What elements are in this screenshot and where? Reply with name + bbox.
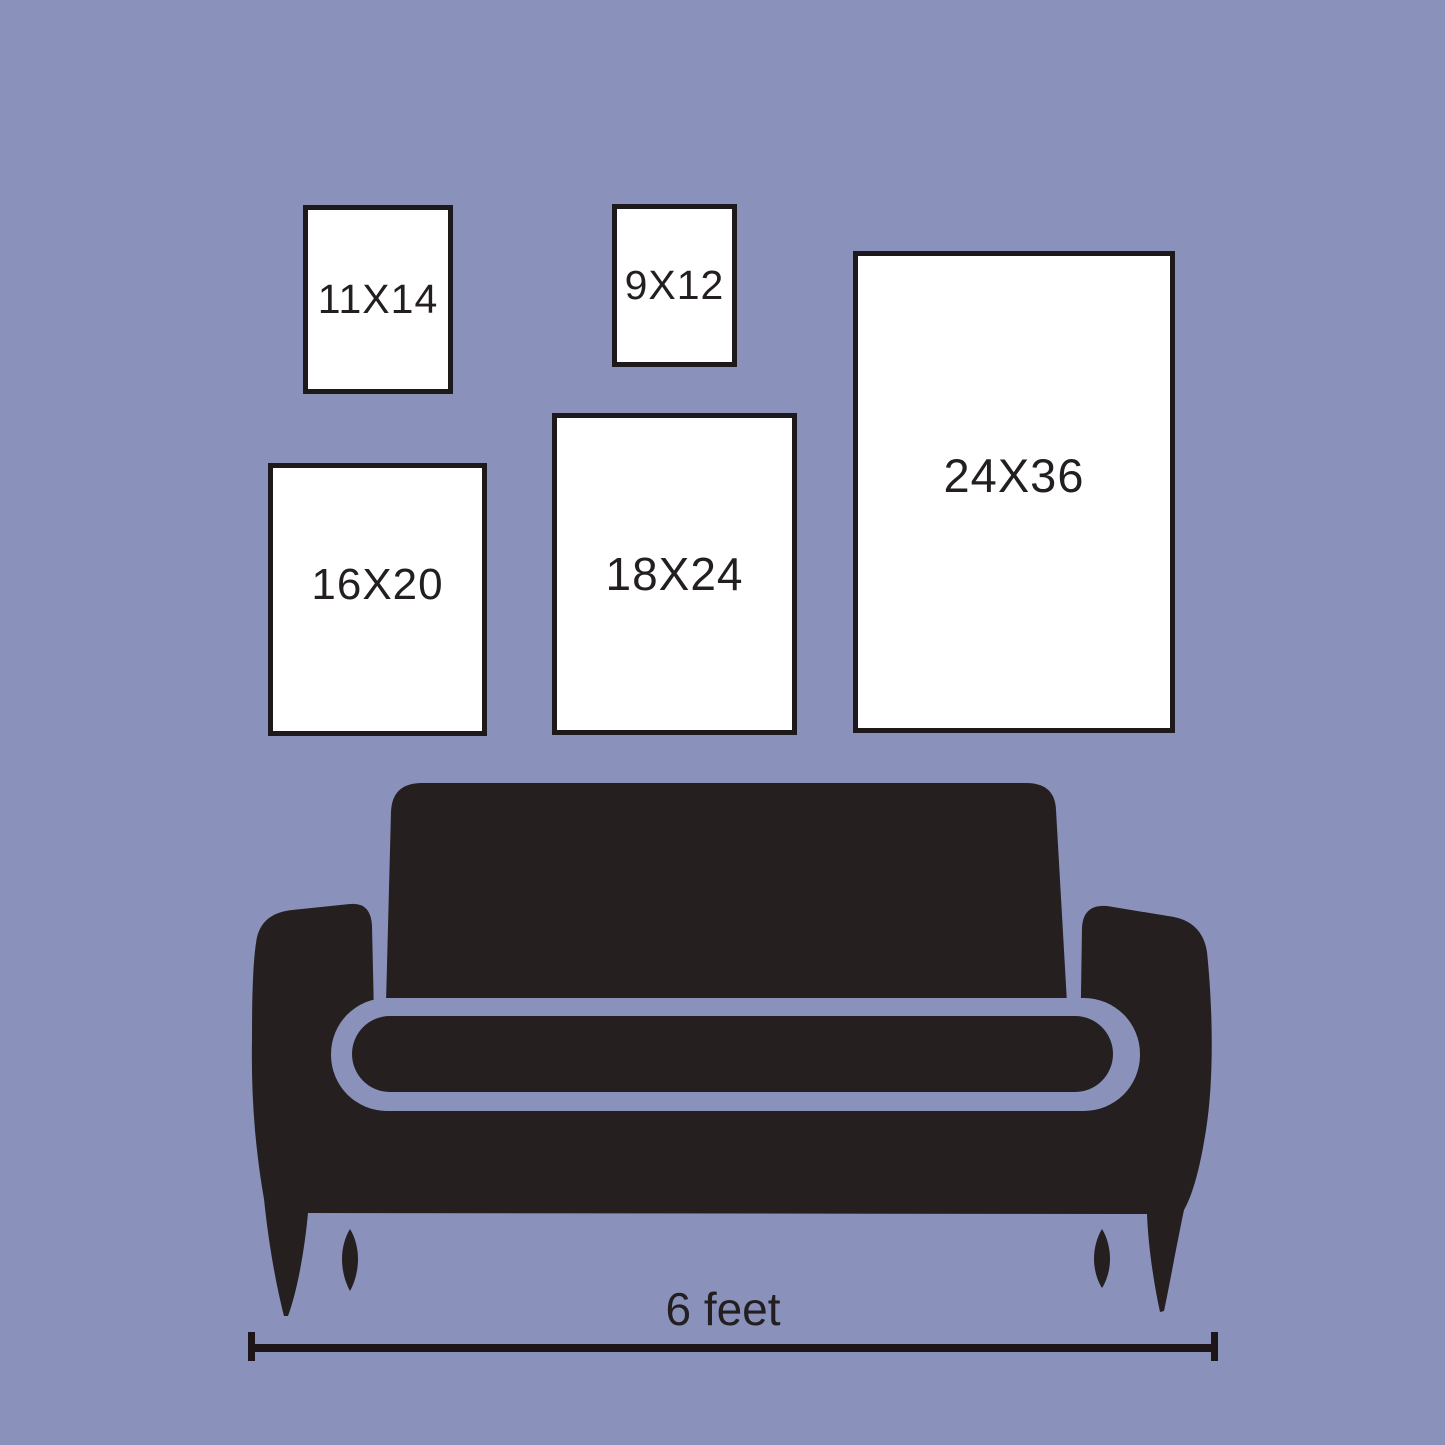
dimension-label: 6 feet	[573, 1286, 873, 1332]
dimension-line	[252, 1344, 1217, 1352]
dimension-tick-right	[1211, 1332, 1218, 1361]
size-guide-diagram: 11X14 9X12 16X20 18X24 24X36 6 feet	[0, 0, 1445, 1445]
couch-icon	[0, 0, 1445, 1445]
